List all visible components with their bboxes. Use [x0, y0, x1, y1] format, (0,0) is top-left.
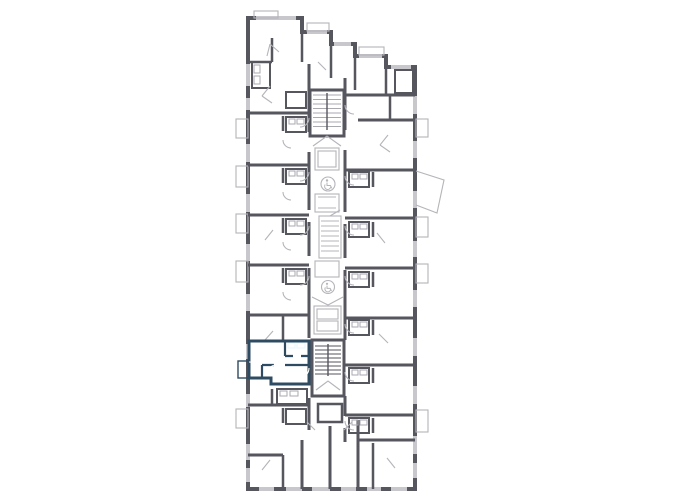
wheelchair-accessible-elevator-icon — [322, 281, 335, 294]
wheelchair-accessible-elevator-icon — [321, 177, 335, 191]
parapet — [359, 47, 384, 55]
balcony-right — [416, 264, 428, 283]
core — [310, 90, 344, 422]
parapet — [307, 23, 329, 31]
balcony-right — [416, 410, 428, 432]
elevator-lobby-lower — [312, 261, 343, 334]
selected-apartment-fixtures — [288, 343, 305, 348]
selected-apartment[interactable] — [238, 341, 309, 384]
vestibule — [318, 404, 342, 422]
stairwell-upper — [310, 90, 344, 146]
balcony-right — [416, 217, 428, 237]
elevator-lobby-upper — [315, 148, 339, 212]
balcony-right — [416, 119, 428, 137]
floor-plan — [0, 0, 680, 500]
angled-balcony — [416, 171, 444, 213]
selected-apartment-doors — [249, 356, 309, 378]
service-shaft — [319, 216, 341, 258]
stairwell-lower — [312, 340, 344, 396]
interior-walls-left — [248, 32, 309, 489]
